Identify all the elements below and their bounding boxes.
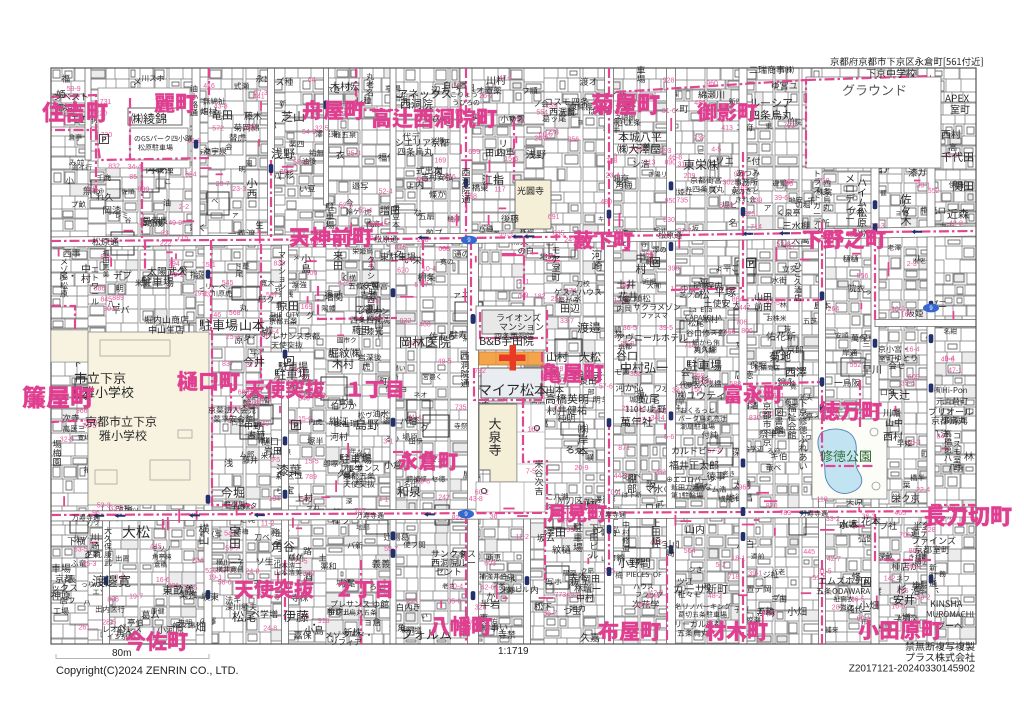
svg-text:33-7: 33-7 [560, 318, 574, 325]
svg-text:715: 715 [177, 235, 189, 242]
svg-text:889: 889 [138, 186, 150, 193]
svg-text:19-8: 19-8 [416, 478, 430, 485]
svg-text:220: 220 [764, 610, 776, 617]
svg-text:925: 925 [744, 211, 756, 218]
svg-text:36-5: 36-5 [623, 325, 637, 332]
svg-text:890: 890 [665, 160, 677, 167]
svg-text:147: 147 [783, 179, 795, 186]
svg-text:609: 609 [908, 374, 920, 381]
svg-text:876: 876 [395, 245, 407, 252]
svg-text:830: 830 [749, 415, 761, 422]
svg-text:789: 789 [305, 474, 317, 481]
svg-text:10-4: 10-4 [607, 489, 621, 496]
svg-text:59-7: 59-7 [225, 545, 239, 552]
svg-text:886: 886 [107, 597, 119, 604]
svg-text:57-4: 57-4 [707, 448, 721, 455]
svg-text:10-4: 10-4 [449, 584, 463, 591]
svg-text:31-6: 31-6 [662, 108, 676, 115]
svg-text:118: 118 [817, 497, 828, 504]
svg-text:568: 568 [229, 310, 241, 317]
svg-text:47-1: 47-1 [948, 368, 962, 375]
svg-text:49-5: 49-5 [438, 359, 452, 366]
svg-text:25-5: 25-5 [294, 559, 308, 566]
svg-text:55-9: 55-9 [293, 160, 307, 167]
svg-text:57-6: 57-6 [599, 383, 613, 390]
svg-text:792: 792 [474, 368, 486, 375]
svg-text:16-4: 16-4 [906, 347, 920, 354]
svg-text:932: 932 [400, 318, 412, 325]
svg-text:918: 918 [318, 618, 330, 625]
svg-text:11-2: 11-2 [261, 520, 275, 527]
svg-text:572: 572 [212, 126, 224, 133]
svg-text:43-8: 43-8 [469, 496, 483, 503]
svg-text:222: 222 [160, 241, 172, 248]
svg-text:552: 552 [850, 362, 862, 369]
svg-text:1:1719: 1:1719 [498, 646, 529, 657]
svg-text:52-4: 52-4 [358, 207, 372, 214]
svg-text:25-3: 25-3 [347, 150, 361, 157]
svg-text:26-7: 26-7 [479, 93, 493, 100]
svg-text:31-3: 31-3 [678, 162, 692, 169]
svg-text:30-4: 30-4 [103, 306, 117, 313]
svg-text:18-1: 18-1 [731, 555, 745, 562]
svg-text:36-5: 36-5 [851, 596, 865, 603]
svg-text:564: 564 [684, 548, 696, 555]
svg-text:64: 64 [308, 77, 316, 84]
svg-text:4-5: 4-5 [711, 146, 721, 153]
svg-text:794: 794 [168, 261, 180, 268]
svg-text:413: 413 [721, 125, 733, 132]
svg-text:864: 864 [732, 296, 744, 303]
svg-text:554: 554 [536, 110, 548, 117]
svg-text:53-2: 53-2 [916, 595, 930, 602]
svg-text:34-4: 34-4 [128, 164, 142, 171]
svg-text:43-8: 43-8 [214, 103, 228, 110]
svg-text:35-4: 35-4 [901, 381, 915, 388]
svg-text:7-5: 7-5 [526, 469, 536, 476]
svg-text:56-7: 56-7 [543, 611, 557, 618]
svg-text:545: 545 [222, 280, 234, 287]
svg-text:261: 261 [79, 624, 91, 631]
svg-text:60-2: 60-2 [907, 563, 921, 570]
svg-text:738: 738 [606, 158, 618, 165]
svg-text:117: 117 [494, 187, 505, 194]
svg-text:841: 841 [937, 434, 949, 441]
svg-text:793: 793 [783, 123, 795, 130]
svg-text:52-4: 52-4 [379, 188, 393, 195]
svg-text:718: 718 [728, 574, 740, 581]
svg-text:59-5: 59-5 [566, 593, 580, 600]
svg-text:25-3: 25-3 [82, 561, 96, 568]
svg-text:735: 735 [676, 198, 688, 205]
svg-text:404: 404 [448, 217, 460, 224]
svg-text:33-2: 33-2 [109, 506, 123, 513]
svg-text:33: 33 [161, 230, 169, 237]
svg-text:398: 398 [668, 266, 680, 273]
svg-text:668: 668 [438, 246, 450, 253]
svg-text:32-5: 32-5 [315, 126, 329, 133]
svg-text:556: 556 [857, 273, 869, 280]
svg-text:213: 213 [644, 160, 656, 167]
svg-text:706: 706 [899, 532, 911, 539]
svg-text:39-6: 39-6 [774, 195, 788, 202]
svg-text:286: 286 [245, 125, 257, 132]
svg-text:445: 445 [803, 549, 815, 556]
svg-text:25-2: 25-2 [226, 334, 240, 341]
svg-text:408: 408 [419, 321, 431, 328]
svg-text:789: 789 [737, 185, 749, 192]
svg-text:403: 403 [650, 539, 662, 546]
svg-text:53-3: 53-3 [97, 502, 111, 509]
svg-text:36-3: 36-3 [862, 514, 876, 521]
svg-text:31-5: 31-5 [818, 569, 832, 576]
svg-text:699: 699 [468, 149, 480, 156]
svg-text:60-5: 60-5 [539, 131, 553, 138]
svg-text:42-9: 42-9 [649, 590, 663, 597]
svg-text:691: 691 [548, 214, 560, 221]
svg-text:379: 379 [303, 571, 315, 578]
svg-text:234: 234 [192, 558, 204, 565]
svg-text:587: 587 [266, 292, 278, 299]
svg-text:44-3: 44-3 [614, 473, 628, 480]
svg-text:142: 142 [884, 576, 896, 583]
svg-text:889: 889 [112, 295, 124, 302]
svg-text:886: 886 [94, 286, 106, 293]
svg-text:870: 870 [766, 503, 778, 510]
svg-text:11-6: 11-6 [670, 286, 684, 293]
svg-text:620: 620 [397, 268, 409, 275]
svg-text:47-1: 47-1 [499, 75, 513, 82]
svg-text:293: 293 [660, 148, 672, 155]
svg-text:54-9: 54-9 [302, 129, 316, 136]
svg-text:23-3: 23-3 [232, 186, 246, 193]
svg-text:40-9: 40-9 [891, 307, 905, 314]
svg-text:624: 624 [185, 171, 197, 178]
svg-text:856: 856 [568, 136, 580, 143]
svg-text:725: 725 [512, 117, 524, 124]
svg-text:19-7: 19-7 [129, 594, 143, 601]
svg-text:871: 871 [618, 445, 630, 452]
svg-text:38: 38 [490, 514, 498, 521]
svg-text:26: 26 [260, 334, 268, 341]
svg-text:806: 806 [741, 328, 753, 335]
svg-text:735: 735 [455, 404, 467, 411]
svg-text:5-5: 5-5 [270, 457, 280, 464]
svg-text:24-8: 24-8 [263, 625, 277, 632]
svg-text:963: 963 [739, 484, 751, 491]
svg-text:46: 46 [213, 312, 221, 319]
svg-text:2-8: 2-8 [86, 186, 96, 193]
svg-text:35-6: 35-6 [447, 599, 461, 606]
svg-text:42-6: 42-6 [481, 585, 495, 592]
svg-text:20-9: 20-9 [575, 465, 589, 472]
svg-text:24-6: 24-6 [635, 602, 649, 609]
svg-text:707: 707 [354, 508, 366, 515]
svg-text:837: 837 [222, 361, 234, 368]
svg-text:773: 773 [555, 592, 567, 599]
svg-text:169: 169 [528, 426, 540, 433]
svg-text:635: 635 [553, 231, 565, 238]
svg-text:2-3: 2-3 [907, 261, 917, 268]
svg-text:950: 950 [665, 198, 677, 205]
svg-text:603: 603 [484, 560, 496, 567]
svg-text:15-1: 15-1 [202, 262, 216, 269]
svg-text:3-1: 3-1 [383, 439, 393, 446]
svg-text:447: 447 [739, 305, 751, 312]
svg-text:169: 169 [435, 158, 447, 165]
svg-text:255: 255 [551, 296, 563, 303]
svg-text:830: 830 [663, 217, 675, 224]
svg-text:194: 194 [269, 496, 281, 503]
svg-text:242: 242 [438, 495, 450, 502]
svg-text:19-1: 19-1 [194, 291, 208, 298]
svg-text:966: 966 [76, 408, 88, 415]
svg-text:52-5: 52-5 [339, 203, 353, 210]
svg-text:273: 273 [406, 599, 418, 606]
svg-text:42-7: 42-7 [827, 556, 841, 563]
svg-text:416: 416 [203, 83, 215, 90]
svg-text:49-9: 49-9 [168, 220, 182, 227]
svg-text:779: 779 [517, 292, 529, 299]
svg-text:928: 928 [924, 527, 936, 534]
svg-text:41-4: 41-4 [408, 414, 422, 421]
svg-text:51-8: 51-8 [719, 202, 733, 209]
svg-text:714: 714 [750, 224, 762, 231]
svg-text:264: 264 [828, 306, 840, 313]
svg-text:545: 545 [376, 222, 388, 229]
svg-text:15-6: 15-6 [504, 156, 518, 163]
svg-text:5-2: 5-2 [716, 562, 726, 569]
svg-text:9-4: 9-4 [945, 356, 955, 363]
svg-text:20-7: 20-7 [216, 181, 230, 188]
svg-text:552: 552 [928, 188, 940, 195]
svg-text:23-4: 23-4 [606, 173, 620, 180]
svg-text:182: 182 [534, 294, 546, 301]
svg-text:465: 465 [894, 510, 906, 517]
svg-text:39-1: 39-1 [748, 571, 762, 578]
svg-text:47-7: 47-7 [338, 280, 352, 287]
svg-text:783: 783 [780, 510, 792, 517]
svg-text:15-5: 15-5 [305, 458, 319, 465]
svg-text:317: 317 [784, 244, 796, 251]
svg-text:282: 282 [654, 469, 666, 476]
svg-text:302: 302 [723, 180, 735, 187]
svg-text:2-2: 2-2 [179, 204, 189, 211]
svg-text:737: 737 [693, 136, 705, 143]
svg-text:4-1: 4-1 [378, 496, 388, 503]
svg-text:59-9: 59-9 [67, 86, 81, 93]
svg-text:10-4: 10-4 [422, 266, 436, 273]
svg-text:28-5: 28-5 [102, 620, 116, 627]
svg-text:58-6: 58-6 [218, 580, 232, 587]
svg-text:33-2: 33-2 [826, 516, 840, 523]
svg-text:16-6: 16-6 [891, 604, 905, 611]
svg-text:832: 832 [108, 163, 120, 170]
svg-text:11-2: 11-2 [515, 534, 529, 541]
svg-text:32-2: 32-2 [499, 233, 513, 240]
svg-text:28: 28 [832, 604, 840, 611]
svg-text:80m: 80m [112, 648, 131, 659]
svg-text:169: 169 [301, 304, 313, 311]
svg-text:Copyright(C)2024 ZENRIN CO., L: Copyright(C)2024 ZENRIN CO., LTD. [56, 665, 239, 677]
svg-text:5-6: 5-6 [664, 434, 674, 441]
svg-text:16-3: 16-3 [907, 439, 921, 446]
svg-text:845: 845 [100, 297, 112, 304]
svg-text:50-6: 50-6 [698, 379, 712, 386]
svg-text:32-9: 32-9 [60, 437, 74, 444]
svg-text:85: 85 [129, 174, 137, 181]
svg-text:928: 928 [663, 78, 675, 85]
svg-text:22-4: 22-4 [916, 487, 930, 494]
svg-text:39-5: 39-5 [659, 325, 673, 332]
svg-text:441: 441 [253, 93, 265, 100]
svg-text:211: 211 [518, 279, 529, 286]
svg-text:Z2017121-20240330145902: Z2017121-20240330145902 [849, 664, 976, 675]
svg-text:42-8: 42-8 [949, 221, 963, 228]
svg-text:29: 29 [622, 405, 630, 412]
svg-text:34-4: 34-4 [651, 415, 665, 422]
svg-text:960: 960 [706, 81, 718, 88]
svg-text:480: 480 [600, 199, 612, 206]
svg-text:53-5: 53-5 [74, 547, 88, 554]
svg-text:706: 706 [736, 320, 748, 327]
svg-text:24-8: 24-8 [246, 569, 260, 576]
svg-text:57-7: 57-7 [414, 282, 428, 289]
